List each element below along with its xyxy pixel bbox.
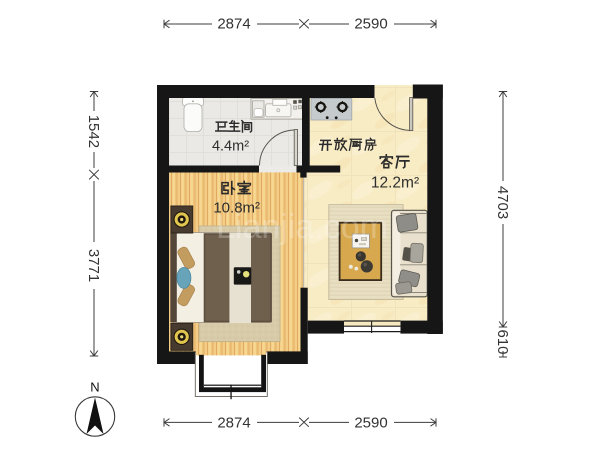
svg-text:2590: 2590	[354, 414, 387, 431]
svg-text:2874: 2874	[217, 414, 250, 431]
svg-text:610: 610	[494, 329, 511, 354]
svg-text:N: N	[90, 380, 99, 395]
svg-text:10.8m²: 10.8m²	[213, 199, 260, 216]
svg-text:2874: 2874	[217, 15, 250, 32]
svg-text:4.4m²: 4.4m²	[212, 138, 249, 154]
svg-text:4703: 4703	[494, 186, 511, 219]
svg-text:1542: 1542	[85, 115, 102, 148]
svg-text:12.2m²: 12.2m²	[371, 174, 419, 191]
svg-text:2590: 2590	[354, 15, 387, 32]
svg-text:3771: 3771	[85, 249, 102, 282]
